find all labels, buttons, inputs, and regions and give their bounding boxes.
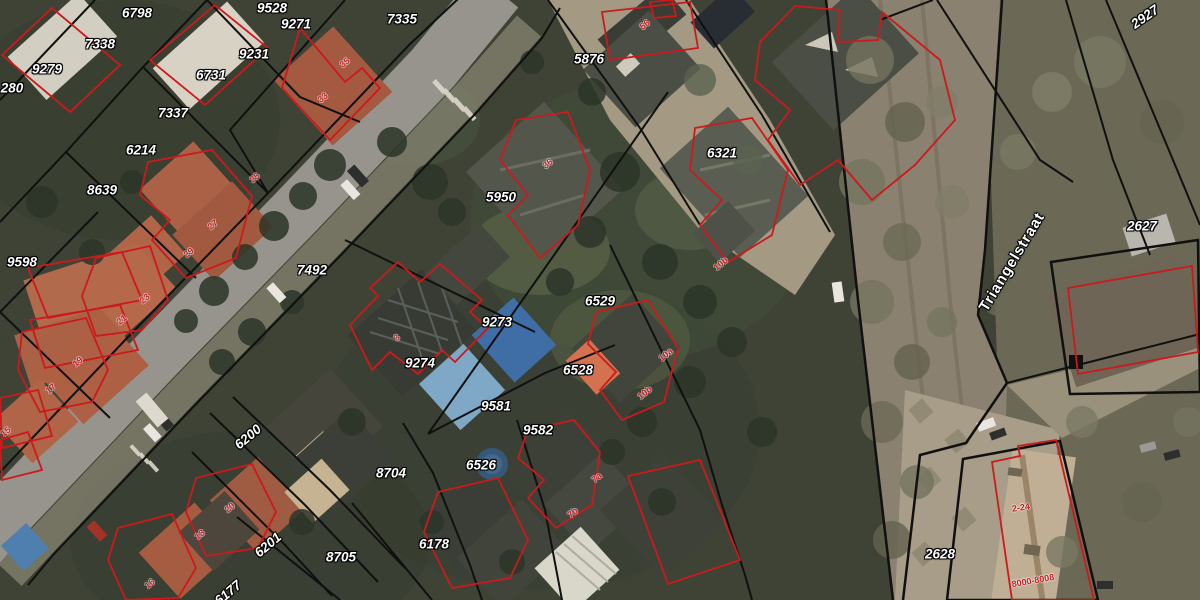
map-viewport[interactable]: 9528679892717335733892319279673128073376…	[0, 0, 1200, 600]
aerial-basemap	[0, 0, 1200, 600]
